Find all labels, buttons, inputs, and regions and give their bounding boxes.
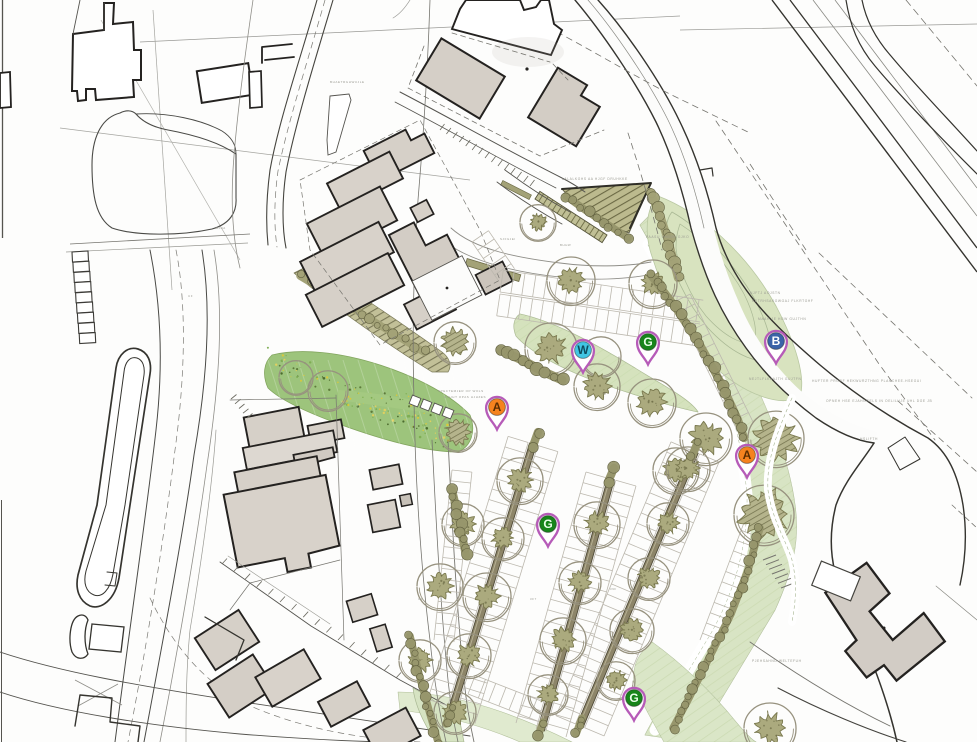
svg-text:UF: UF bbox=[188, 294, 193, 298]
svg-text:SJFGJEI: SJFGJEI bbox=[500, 237, 516, 241]
svg-text:A: A bbox=[493, 400, 502, 414]
svg-text:G: G bbox=[543, 517, 552, 531]
svg-text:BHAETRGHWUJLE: BHAETRGHWUJLE bbox=[330, 80, 365, 84]
svg-text:HUFTER PROOF HEKWURZTHNG PLA: HUFTER PROOF HEKWURZTHNG PLANCHEE-HSEGUI bbox=[812, 379, 921, 383]
svg-text:HSLIFTH: HSLIFTH bbox=[860, 437, 878, 441]
svg-text:NJFTJ AOJSTN: NJFTJ AOJSTN bbox=[750, 291, 781, 295]
svg-text:BHHW: BHHW bbox=[560, 243, 571, 247]
svg-text:3F7: 3F7 bbox=[530, 597, 537, 601]
svg-text:PAASU VHGOF-GJKO: PAASU VHGOF-GJKO bbox=[646, 235, 689, 239]
svg-text:B: B bbox=[772, 334, 781, 348]
svg-text:NEJTLFLKAAJTH GUJTFN: NEJTLFLKAAJTH GUJTFN bbox=[749, 377, 802, 381]
svg-text:OPNEH HSE EJAHGGELS IN OEL: OPNEH HSE EJAHGGELS IN OELILHJE UHL DGE … bbox=[826, 399, 932, 403]
svg-text:G: G bbox=[643, 335, 652, 349]
svg-text:G: G bbox=[629, 691, 638, 705]
svg-text:SPECTEMJER OP WOLS: SPECTEMJER OP WOLS bbox=[438, 389, 484, 393]
svg-text:MAAH JE HGW GUJTHN: MAAH JE HGW GUJTHN bbox=[758, 317, 806, 321]
svg-text:39F: 39F bbox=[610, 587, 617, 591]
svg-text:BJHA: BJHA bbox=[216, 226, 226, 230]
svg-text:CUUHT OPAS HJHZES: CUUHT OPAS HJHZES bbox=[444, 395, 486, 399]
svg-text:A: A bbox=[743, 448, 752, 462]
svg-text:PJEHSAHND WELTEFUH: PJEHSAHND WELTEFUH bbox=[752, 659, 802, 663]
svg-text:UF: UF bbox=[440, 517, 445, 521]
svg-text:LALALKGHS AA HJGF DRUHKKE: LALALKGHS AA HJGF DRUHKKE bbox=[562, 177, 628, 181]
svg-text:W: W bbox=[577, 343, 589, 357]
svg-text:OF: OF bbox=[418, 597, 423, 601]
svg-text:KDTRHSAKGWGAJ FLKRTGHF: KDTRHSAKGWGAJ FLKRTGHF bbox=[752, 299, 814, 303]
